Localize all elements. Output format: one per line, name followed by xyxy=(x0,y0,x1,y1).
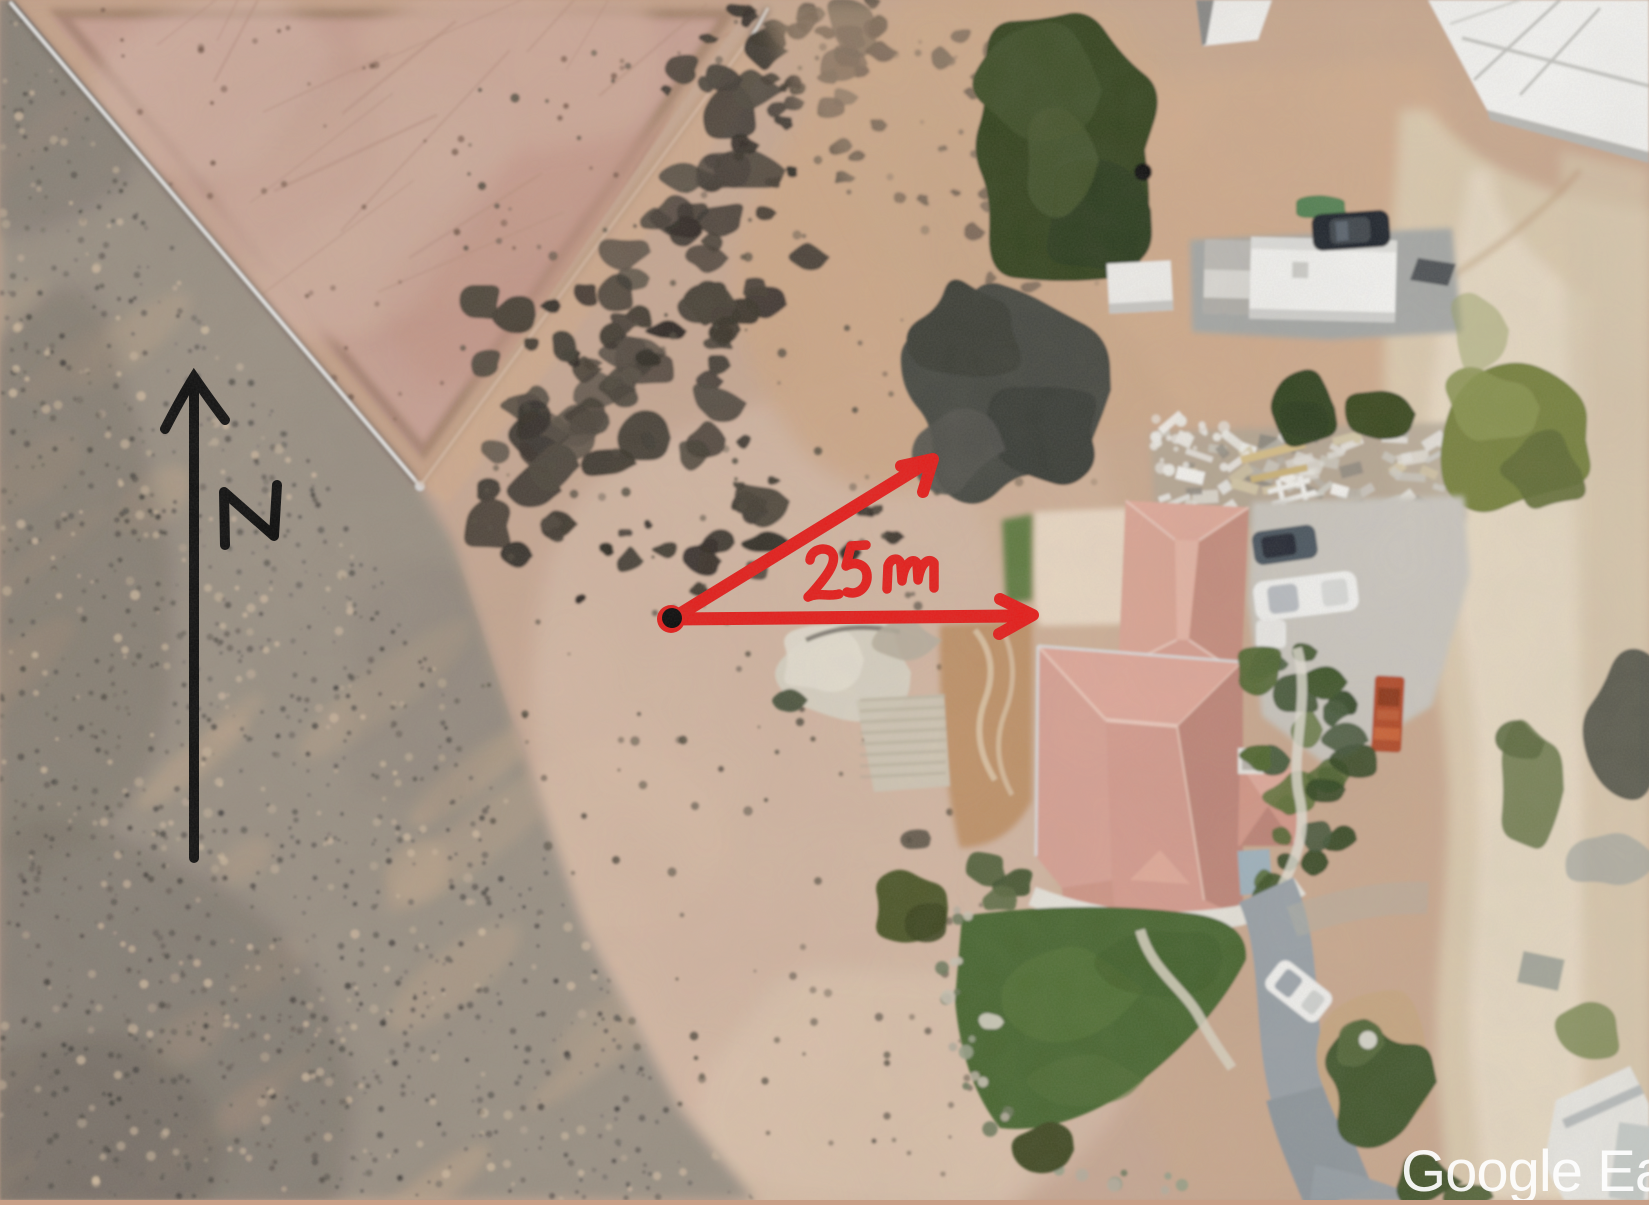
svg-text:Google Ea: Google Ea xyxy=(1401,1139,1649,1200)
